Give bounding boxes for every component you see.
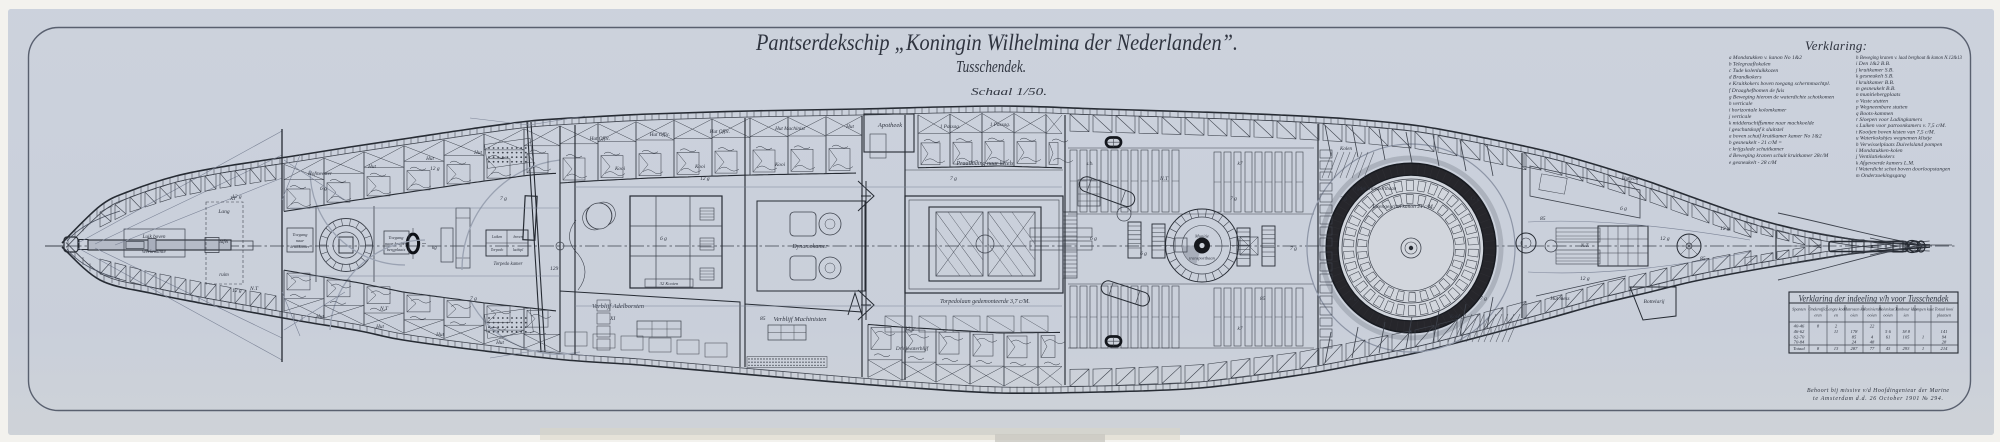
svg-text:12 g: 12 g [232, 288, 242, 294]
svg-text:214: 214 [1941, 346, 1949, 351]
svg-text:Kolen: Kolen [1449, 315, 1462, 320]
svg-text:105: 105 [1903, 334, 1911, 339]
svg-text:Hofmeester: Hofmeester [307, 170, 333, 177]
svg-text:12 g: 12 g [1580, 276, 1590, 282]
svg-text:kruitkamer: kruitkamer [290, 244, 310, 249]
svg-text:Dynamokamer: Dynamokamer [791, 244, 828, 250]
svg-text:Behoort bij missive v/d Hoofdi: Behoort bij missive v/d Hoofdingenieur d… [1807, 387, 1949, 394]
svg-text:7 g: 7 g [1230, 196, 1237, 202]
svg-text:d Brandkokers: d Brandkokers [1729, 75, 1762, 81]
svg-text:293: 293 [1903, 346, 1911, 351]
svg-text:13: 13 [1834, 346, 1839, 351]
svg-text:94: 94 [1942, 334, 1947, 339]
svg-text:Praailading naar ketels: Praailading naar ketels [956, 161, 1015, 167]
svg-text:7 g: 7 g [1290, 246, 1297, 252]
svg-text:12 g: 12 g [700, 176, 710, 182]
svg-text:Torpedo: Torpedo [491, 248, 504, 252]
svg-text:Hut: Hut [435, 332, 444, 338]
svg-text:7 g: 7 g [1480, 296, 1487, 302]
svg-text:24: 24 [1852, 340, 1857, 345]
svg-text:o Vaste stutten: o Vaste stutten [1856, 98, 1888, 104]
svg-text:Hut Offic.: Hut Offic. [709, 128, 731, 135]
svg-text:ooien: ooien [1883, 313, 1892, 318]
svg-text:kg: kg [432, 246, 437, 251]
svg-text:Torengeschut kanon 21 c/M.: Torengeschut kanon 21 c/M. [1372, 204, 1434, 210]
svg-text:Hut: Hut [425, 156, 434, 162]
svg-text:g Beweging hierom de waterdich: g Beweging hierom de waterdichte schotko… [1729, 94, 1834, 100]
svg-text:N.T.: N.T. [1580, 243, 1590, 249]
svg-text:12 g: 12 g [430, 166, 440, 172]
svg-text:70-84: 70-84 [1794, 340, 1805, 345]
svg-text:k Afgevoerde kamers L.M.: k Afgevoerde kamers L.M. [1856, 159, 1914, 166]
svg-text:Totaal: Totaal [1793, 346, 1805, 351]
svg-text:Totaal kooi: Totaal kooi [1935, 307, 1955, 312]
svg-text:naar: naar [296, 238, 305, 243]
svg-text:i Mondstukken-kolen: i Mondstukken-kolen [1856, 148, 1903, 154]
svg-text:Hut van: Hut van [1621, 176, 1639, 182]
svg-text:d Beweging kranen schuit kruit: d Beweging kranen schuit kruitkamer 28c/… [1729, 153, 1829, 159]
svg-text:7 g: 7 g [1340, 196, 1347, 202]
svg-text:Kooi: Kooi [774, 162, 786, 168]
svg-text:Torpedo kamer: Torpedo kamer [493, 262, 522, 267]
svg-text:1: 1 [1922, 334, 1924, 339]
svg-text:ruim: ruim [219, 273, 229, 278]
svg-text:te Amsterdam d.d. 26 October 1: te Amsterdam d.d. 26 October 1901 № 294. [1813, 395, 1943, 402]
svg-text:85: 85 [760, 316, 766, 322]
svg-text:i Den 1&2 B.B.: i Den 1&2 B.B. [1856, 61, 1891, 67]
svg-text:plaatsen: plaatsen [1936, 313, 1951, 318]
svg-text:12 g: 12 g [905, 326, 915, 332]
svg-text:en: en [1834, 313, 1838, 318]
svg-text:Lampen kast: Lampen kast [1911, 307, 1934, 312]
svg-text:f Draaghefbomen de fuis: f Draaghefbomen de fuis [1729, 87, 1784, 94]
svg-text:141: 141 [1941, 329, 1948, 334]
svg-text:Kooi: Kooi [614, 166, 626, 172]
svg-text:Drinkwaterblijf: Drinkwaterblijf [895, 345, 930, 352]
svg-text:22: 22 [1870, 324, 1875, 329]
svg-text:178: 178 [1851, 329, 1859, 334]
svg-text:Toegang: Toegang [293, 232, 309, 237]
svg-text:61: 61 [1886, 334, 1891, 339]
svg-text:eren: eren [1814, 313, 1821, 318]
svg-text:85: 85 [1700, 256, 1706, 262]
svg-text:62-70: 62-70 [1794, 334, 1805, 339]
svg-text:Hut Machinist: Hut Machinist [774, 126, 805, 132]
svg-text:e Kruitkokers boven toegang sc: e Kruitkokers boven toegang schermmachtp… [1729, 81, 1830, 87]
svg-text:Pantserdekschip „Koningin Wilh: Pantserdekschip „Koningin Wilhelmina der… [755, 30, 1238, 55]
svg-text:transportbaan: transportbaan [1189, 256, 1216, 261]
svg-text:85: 85 [1540, 216, 1546, 222]
svg-text:ien: ien [1903, 313, 1908, 318]
svg-text:N.T: N.T [249, 286, 259, 292]
svg-text:c krijgslade schuitkamer: c krijgslade schuitkamer [1729, 147, 1785, 153]
svg-text:Hut: Hut [845, 124, 854, 130]
svg-text:28: 28 [1942, 340, 1947, 345]
svg-text:11: 11 [1834, 329, 1838, 334]
svg-text:boven: boven [513, 235, 522, 239]
svg-text:j kruitkamer S.B.: j kruitkamer S.B. [1855, 67, 1894, 73]
svg-text:Verblijf Machinisten: Verblijf Machinisten [774, 316, 827, 323]
svg-text:N.T: N.T [379, 306, 389, 312]
svg-text:k middenschiffsmme naar machko: k middenschiffsmme naar machkoelde [1729, 120, 1815, 127]
svg-text:Tusschendek.: Tusschendek. [956, 57, 1026, 76]
svg-text:luchtpl: luchtpl [513, 248, 524, 252]
svg-text:18 8: 18 8 [1902, 329, 1911, 334]
svg-text:l Waterdicht schot boven doorl: l Waterdicht schot boven doorloopstangen [1856, 167, 1950, 173]
svg-text:r Sloepen voor Ladingkamers: r Sloepen voor Ladingkamers [1856, 117, 1922, 123]
svg-text:m Onderzoekingsgang: m Onderzoekingsgang [1856, 173, 1906, 179]
svg-text:s Luiken voor patroonkamers v.: s Luiken voor patroonkamers v. 7,5 c/M. [1856, 123, 1946, 129]
svg-text:Lang: Lang [217, 209, 230, 215]
svg-text:b gesneukelt - 21 c/M =: b gesneukelt - 21 c/M = [1729, 140, 1782, 146]
svg-text:12 g: 12 g [1720, 226, 1730, 232]
svg-text:n munitiebergplaats: n munitiebergplaats [1856, 92, 1900, 98]
svg-text:1 Passag.: 1 Passag. [990, 122, 1010, 128]
svg-text:j verticale: j verticale [1728, 114, 1752, 120]
svg-text:a boven schuif kruitkamer kame: a boven schuif kruitkamer kamer No 1&2 [1729, 133, 1822, 140]
svg-text:Kolen: Kolen [1339, 147, 1352, 152]
svg-text:6 g: 6 g [1350, 296, 1357, 302]
svg-text:85: 85 [1260, 296, 1266, 302]
svg-text:Hut: Hut [375, 324, 384, 330]
svg-text:Luiken: Luiken [491, 235, 502, 239]
svg-text:N.T: N.T [1159, 176, 1169, 182]
svg-text:Luik boven: Luik boven [142, 234, 166, 240]
svg-text:e gesneukelt - 28 c/M: e gesneukelt - 28 c/M [1729, 160, 1777, 166]
svg-text:u Waterkokshjes wegnemen klist: u Waterkokshjes wegnemen klistje [1856, 136, 1932, 142]
svg-text:1: 1 [1922, 346, 1924, 351]
svg-text:Hut Offic.: Hut Offic. [649, 131, 671, 138]
svg-text:6 g: 6 g [320, 186, 327, 192]
svg-text:Bottelarij: Bottelarij [1643, 299, 1665, 305]
svg-text:Torpedolaan gedemonteerde 3,7: Torpedolaan gedemonteerde 3,7 c/M. [940, 299, 1030, 305]
svg-text:Schaal 1/50.: Schaal 1/50. [971, 86, 1047, 98]
svg-text:Hut: Hut [473, 150, 482, 156]
svg-text:Hut: Hut [315, 314, 324, 320]
svg-text:43: 43 [1886, 346, 1891, 351]
svg-text:Vrijdek transportbaan: Vrijdek transportbaan [1352, 187, 1397, 192]
svg-text:6 g: 6 g [1140, 251, 1147, 257]
svg-text:Verblijf Adelborsten: Verblijf Adelborsten [592, 303, 644, 310]
svg-text:77: 77 [1870, 346, 1875, 351]
svg-text:m gesneukelt B.B.: m gesneukelt B.B. [1856, 86, 1896, 92]
svg-text:Hut: Hut [367, 164, 376, 170]
svg-text:h Verwisselplaats Duivelsland: h Verwisselplaats Duivelsland pompen [1856, 142, 1942, 148]
svg-text:46-62: 46-62 [1794, 329, 1805, 334]
svg-text:tafel: tafel [220, 240, 229, 245]
svg-text:k7: k7 [1238, 161, 1243, 167]
svg-text:b Telegraaflokalen: b Telegraaflokalen [1729, 61, 1771, 68]
svg-text:129: 129 [550, 266, 559, 272]
svg-text:7 g: 7 g [950, 176, 957, 182]
svg-text:32 Kooien: 32 Kooien [660, 281, 679, 286]
svg-text:85: 85 [1852, 334, 1857, 339]
svg-text:oien: oien [1850, 313, 1857, 318]
svg-text:7 g: 7 g [500, 196, 507, 202]
svg-text:Hut mess: Hut mess [1549, 296, 1569, 302]
svg-text:1 Passag.: 1 Passag. [940, 124, 960, 130]
svg-text:6 g: 6 g [1090, 236, 1097, 242]
svg-text:Hut: Hut [495, 340, 504, 346]
svg-text:40-46: 40-46 [1794, 324, 1805, 329]
svg-text:Verklaring der indeeling v/h v: Verklaring der indeeling v/h voor Tussch… [1799, 294, 1950, 304]
svg-text:k7: k7 [1238, 326, 1243, 332]
svg-text:12 g: 12 g [1470, 196, 1480, 202]
svg-text:12 g: 12 g [1660, 236, 1670, 242]
svg-text:Munitie: Munitie [1194, 234, 1209, 239]
svg-text:l geschutskopf k sluitstel: l geschutskopf k sluitstel [1729, 126, 1784, 133]
svg-text:l kruitkamer B.B.: l kruitkamer B.B. [1856, 80, 1894, 86]
svg-text:i horizontale kolomkamer: i horizontale kolomkamer [1729, 107, 1787, 113]
svg-text:Toegang: Toegang [389, 235, 405, 240]
svg-text:7 g: 7 g [470, 296, 477, 302]
svg-text:6 g: 6 g [1620, 206, 1627, 212]
svg-text:s.b.: s.b. [1086, 161, 1093, 167]
svg-text:j Ventilatiekokers: j Ventilatiekokers [1855, 154, 1895, 160]
svg-text:287: 287 [1851, 346, 1859, 351]
svg-text:6 g: 6 g [660, 236, 667, 242]
svg-text:Spanten: Spanten [1792, 307, 1806, 312]
svg-text:k gesneukelt S.B.: k gesneukelt S.B. [1856, 74, 1894, 80]
svg-text:bergplaats: bergplaats [387, 247, 406, 252]
svg-text:q Boots-kammen: q Boots-kammen [1856, 111, 1893, 117]
svg-text:a Mondstukken v. kanon No 1&2: a Mondstukken v. kanon No 1&2 [1729, 55, 1802, 61]
svg-text:t Kooijen boven kisten van 7,5: t Kooijen boven kisten van 7,5 c/M. [1856, 129, 1935, 135]
svg-text:Kooi: Kooi [694, 164, 706, 170]
svg-text:werkruimte: werkruimte [142, 249, 166, 255]
svg-text:Verklaring:: Verklaring: [1805, 38, 1867, 53]
svg-text:Hut Offic.: Hut Offic. [589, 135, 611, 142]
svg-text:c Tude kolenluikkozen: c Tude kolenluikkozen [1729, 68, 1778, 74]
svg-text:h Beweging kranen v. laad berg: h Beweging kranen v. laad berghout & kan… [1856, 55, 1962, 61]
svg-text:48: 48 [1870, 340, 1875, 345]
svg-text:p Wegneembare stutten: p Wegneembare stutten [1855, 105, 1908, 111]
svg-text:h verticale: h verticale [1729, 101, 1753, 107]
svg-text:ooien: ooien [1867, 313, 1876, 318]
svg-text:5 6: 5 6 [1885, 329, 1891, 334]
svg-text:Apotheek: Apotheek [877, 122, 902, 129]
svg-text:Matrozen ko: Matrozen ko [1843, 307, 1865, 312]
